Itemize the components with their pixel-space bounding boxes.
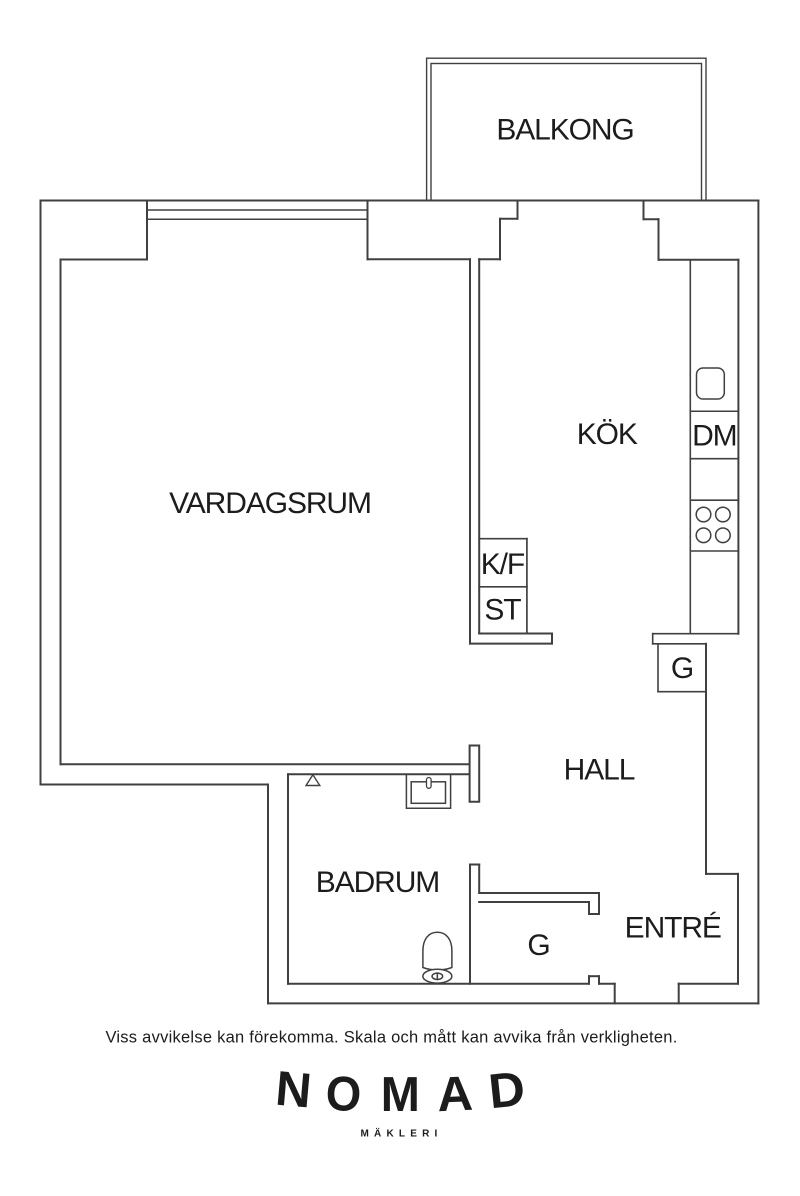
svg-text:ST: ST (484, 594, 521, 627)
svg-text:G: G (527, 929, 549, 962)
svg-text:N: N (273, 1062, 313, 1119)
svg-text:A: A (436, 1067, 474, 1122)
svg-text:O: O (325, 1067, 362, 1123)
svg-text:ENTRÉ: ENTRÉ (625, 912, 721, 945)
svg-text:BADRUM: BADRUM (316, 866, 439, 899)
svg-text:K/F: K/F (481, 548, 525, 581)
svg-text:Viss avvikelse kan förekomma.: Viss avvikelse kan förekomma. Skala och … (105, 1028, 677, 1046)
svg-text:KÖK: KÖK (577, 418, 638, 451)
svg-text:VARDAGSRUM: VARDAGSRUM (169, 487, 371, 520)
svg-text:G: G (671, 652, 693, 685)
svg-text:BALKONG: BALKONG (496, 113, 633, 146)
svg-text:M: M (381, 1068, 420, 1122)
svg-text:DM: DM (692, 419, 736, 452)
svg-text:D: D (486, 1061, 527, 1119)
svg-text:HALL: HALL (564, 753, 635, 786)
svg-text:MÄKLERI: MÄKLERI (361, 1126, 443, 1139)
